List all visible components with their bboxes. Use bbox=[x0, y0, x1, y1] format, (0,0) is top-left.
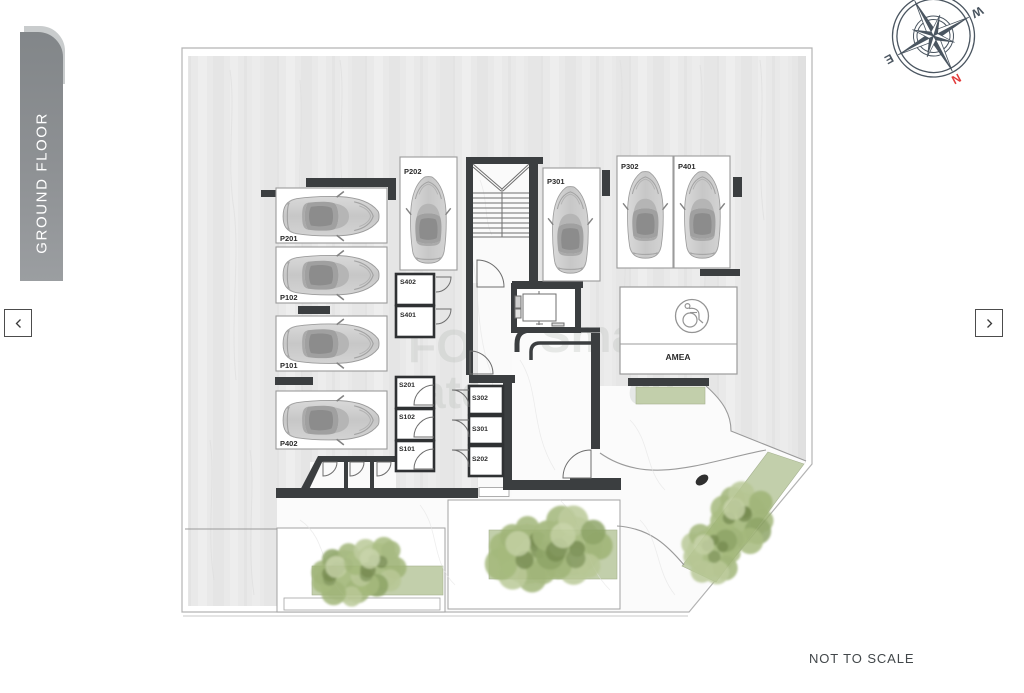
svg-text:P102: P102 bbox=[280, 293, 298, 302]
svg-text:P302: P302 bbox=[621, 162, 639, 171]
svg-text:P402: P402 bbox=[280, 439, 298, 448]
svg-text:S201: S201 bbox=[399, 382, 415, 389]
svg-text:S401: S401 bbox=[400, 312, 416, 319]
svg-text:S202: S202 bbox=[472, 456, 488, 463]
svg-text:AMEA: AMEA bbox=[665, 352, 690, 362]
svg-text:S302: S302 bbox=[472, 395, 488, 402]
svg-text:P301: P301 bbox=[547, 177, 565, 186]
svg-text:S301: S301 bbox=[472, 426, 488, 433]
svg-text:E: E bbox=[882, 51, 896, 67]
svg-text:P201: P201 bbox=[280, 234, 298, 243]
svg-text:P101: P101 bbox=[280, 361, 298, 370]
svg-text:S102: S102 bbox=[399, 414, 415, 421]
svg-text:S402: S402 bbox=[400, 279, 416, 286]
svg-text:P202: P202 bbox=[404, 167, 422, 176]
svg-text:S101: S101 bbox=[399, 446, 415, 453]
svg-text:P401: P401 bbox=[678, 162, 696, 171]
